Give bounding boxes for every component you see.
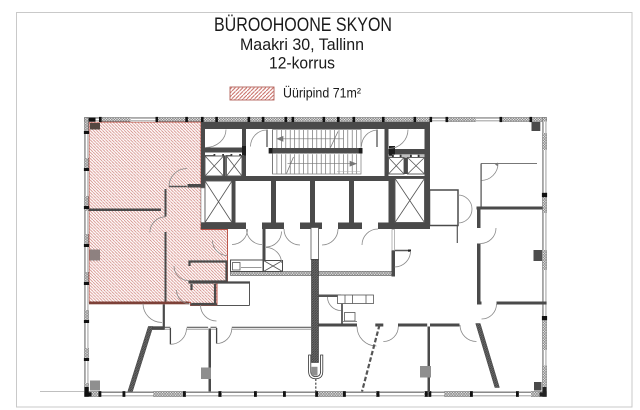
svg-text:12-korrus: 12-korrus [269,55,335,73]
svg-text:BÜROOHOONE SKYON: BÜROOHOONE SKYON [214,15,392,36]
svg-text:Üüripind 71m²: Üüripind 71m² [283,84,361,101]
svg-text:Maakri 30, Tallinn: Maakri 30, Tallinn [240,35,364,54]
